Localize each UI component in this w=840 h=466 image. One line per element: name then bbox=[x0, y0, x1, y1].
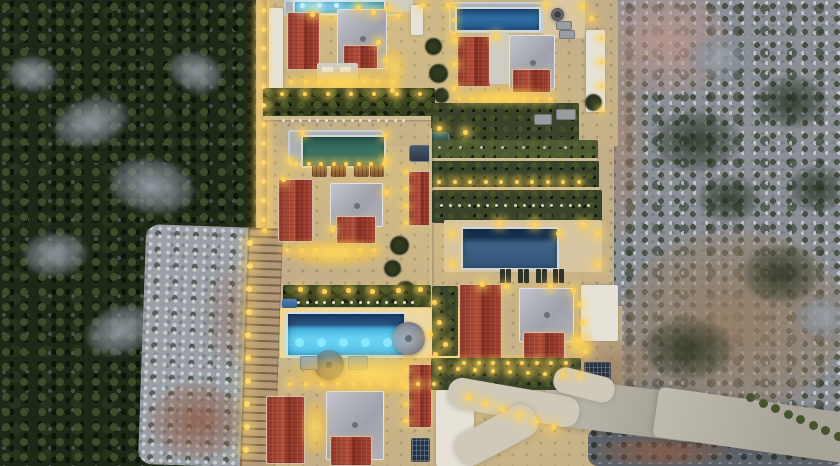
v4-garden-lights bbox=[577, 180, 581, 184]
v1-terrace-lights bbox=[304, 80, 308, 84]
v5-terrace-lights bbox=[368, 382, 372, 386]
v2-round-table bbox=[551, 8, 564, 21]
v5-pool-glow-jets bbox=[295, 338, 304, 347]
v5-hedge-dashes bbox=[359, 301, 362, 304]
boundary-lights bbox=[261, 65, 266, 70]
v5-hedge bbox=[283, 285, 431, 309]
light-point bbox=[396, 288, 401, 293]
boundary-lights bbox=[261, 84, 266, 89]
v5-pool-glow-jets bbox=[361, 338, 370, 347]
light-point bbox=[433, 352, 438, 357]
court-bush bbox=[434, 88, 449, 103]
v3-pool-lights bbox=[332, 162, 336, 166]
v1-hedge-lights bbox=[395, 92, 399, 96]
v1-terrace-lights bbox=[318, 80, 322, 84]
light-point bbox=[384, 190, 389, 195]
v1-terrace-lights bbox=[333, 80, 337, 84]
stairs-lights bbox=[246, 309, 252, 315]
v4-lounger bbox=[542, 269, 547, 283]
carport-lights bbox=[404, 204, 408, 208]
v3-pool-lights bbox=[382, 162, 386, 166]
v5-pool bbox=[286, 312, 406, 357]
light-point bbox=[548, 284, 553, 289]
boundary-lights bbox=[261, 141, 266, 146]
v4-pool-corner-lights bbox=[450, 231, 455, 236]
court-bush bbox=[425, 38, 442, 55]
v6-terrace-lights bbox=[564, 361, 568, 365]
v1-terrace-lights bbox=[376, 80, 380, 84]
v2-terrace-lights bbox=[457, 97, 461, 101]
v4-stone-row bbox=[543, 146, 546, 149]
v5-terrace-lights bbox=[416, 382, 420, 386]
v2-lounger bbox=[534, 114, 552, 125]
boundary-lights bbox=[261, 179, 266, 184]
light-point bbox=[577, 302, 582, 307]
light-point bbox=[452, 86, 457, 91]
light-point bbox=[571, 288, 576, 293]
carport-lights bbox=[404, 385, 408, 389]
light-point bbox=[356, 5, 361, 10]
v2-deckedge-lights bbox=[452, 5, 456, 9]
v3-terrace-lights bbox=[314, 248, 318, 252]
v4-dash-row bbox=[532, 204, 535, 207]
v4-pool-corner-lights bbox=[595, 231, 600, 236]
light-point bbox=[428, 332, 433, 337]
v4-lounger bbox=[553, 269, 558, 283]
light-point bbox=[390, 88, 395, 93]
v1-pool-sparkle bbox=[317, 3, 322, 8]
light-point bbox=[452, 38, 457, 43]
v3-pergola bbox=[370, 165, 384, 177]
stairs-lights bbox=[247, 263, 253, 269]
light-point bbox=[452, 62, 457, 67]
v6-garden-lights bbox=[491, 369, 495, 373]
v1-hedge-lights bbox=[280, 92, 284, 96]
v6-corner-glow bbox=[563, 328, 595, 360]
v4-stone-row bbox=[459, 146, 462, 149]
v2-terrace-lights bbox=[483, 97, 487, 101]
v1-terrace-lights bbox=[289, 80, 293, 84]
v4-dash-row bbox=[477, 204, 480, 207]
aerial-photo bbox=[0, 0, 840, 466]
v3-pergola bbox=[331, 165, 346, 177]
v6-terrace-lights bbox=[491, 361, 495, 365]
court-wall bbox=[411, 5, 423, 35]
v2-terrace-lights bbox=[548, 97, 552, 101]
road-bushes bbox=[821, 426, 830, 435]
v3-pool-lights bbox=[357, 162, 361, 166]
v1-wall-line bbox=[263, 116, 435, 120]
v5-terrace-lights bbox=[352, 382, 356, 386]
light-point bbox=[580, 320, 585, 325]
light-point bbox=[583, 349, 588, 354]
v4-garden-lights bbox=[499, 180, 503, 184]
v4-stone-row bbox=[501, 146, 504, 149]
light-point bbox=[298, 287, 303, 292]
v4-lounger bbox=[506, 269, 511, 283]
light-point bbox=[418, 287, 423, 292]
v4-lounger bbox=[524, 269, 529, 283]
v4-stone-row bbox=[564, 146, 567, 149]
v6-garden-lights bbox=[473, 368, 477, 372]
v5-pool-glow-jets bbox=[339, 338, 348, 347]
light-point bbox=[383, 58, 388, 63]
boundary-lights bbox=[261, 198, 266, 203]
road-bushes bbox=[796, 415, 805, 424]
light-point bbox=[376, 40, 381, 45]
boundary-lights bbox=[261, 217, 266, 222]
light-point bbox=[281, 177, 286, 182]
v6-garden-lights bbox=[456, 367, 460, 371]
v4-lounger bbox=[500, 269, 505, 283]
path-lights bbox=[517, 413, 522, 418]
v2-rightwall-lights bbox=[599, 84, 603, 88]
road-bushes bbox=[771, 404, 780, 413]
v5-terrace-lights bbox=[288, 382, 292, 386]
boundary-lights bbox=[261, 27, 266, 32]
v3-bush bbox=[384, 260, 401, 277]
light-point bbox=[493, 34, 498, 39]
v1-dash-row bbox=[282, 119, 285, 122]
light-point bbox=[443, 342, 448, 347]
v4-dash-row bbox=[560, 204, 563, 207]
v1-hedge-lights bbox=[418, 92, 422, 96]
v1-pool-sparkle bbox=[334, 3, 339, 8]
v1-hedge-lights bbox=[372, 92, 376, 96]
light-point bbox=[497, 221, 502, 226]
path-lights bbox=[534, 419, 539, 424]
light-point bbox=[262, 228, 267, 233]
carport-lights bbox=[404, 170, 408, 174]
v6-terrace-lights bbox=[506, 361, 510, 365]
light-point bbox=[437, 320, 442, 325]
v3-pool-lights bbox=[319, 162, 323, 166]
rock-patch bbox=[688, 36, 750, 78]
v5-hedge-dashes bbox=[385, 301, 388, 304]
v6-terrace-lights bbox=[462, 361, 466, 365]
v2-terrace-lights bbox=[496, 97, 500, 101]
v4-lounger bbox=[518, 269, 523, 283]
v1-terrace-lights bbox=[391, 80, 395, 84]
v5-roof-red-low bbox=[330, 436, 372, 466]
road-bushes bbox=[784, 410, 793, 419]
boundary-lights bbox=[261, 46, 266, 51]
v5-hedge-dashes bbox=[315, 301, 318, 304]
path-lights bbox=[483, 401, 488, 406]
v1-hedge-lights bbox=[349, 92, 353, 96]
solar-panel bbox=[411, 438, 430, 462]
v5-pool-glow-jets bbox=[317, 338, 326, 347]
light-point bbox=[300, 131, 305, 136]
light-point bbox=[556, 231, 561, 236]
light-point bbox=[581, 222, 586, 227]
v2-deckedge-lights bbox=[452, 18, 456, 22]
path-lights bbox=[500, 407, 505, 412]
light-point bbox=[383, 158, 388, 163]
carport-lights bbox=[404, 187, 408, 191]
v2-rightwall-lights bbox=[599, 36, 603, 40]
v3-terrace-lights bbox=[343, 248, 347, 252]
v4-garden-lights bbox=[468, 180, 472, 184]
v1-dash-row bbox=[351, 119, 354, 122]
v2-lounger bbox=[556, 21, 572, 30]
v5-hedge-dashes bbox=[297, 301, 300, 304]
dirt-red-patch bbox=[148, 382, 246, 460]
v1-terrace-lights bbox=[362, 80, 366, 84]
v1-roof-red-main bbox=[287, 12, 320, 70]
v2-rightwall-lights bbox=[599, 108, 603, 112]
v4-dash-row bbox=[440, 204, 443, 207]
v3-pool-lights bbox=[344, 162, 348, 166]
path-lights bbox=[466, 395, 471, 400]
v3-pool-lights bbox=[294, 162, 298, 166]
v5-terrace-lights bbox=[336, 382, 340, 386]
path-lights bbox=[551, 425, 556, 430]
light-point bbox=[446, 3, 451, 8]
v1-dash-row bbox=[291, 119, 294, 122]
boundary-lights bbox=[261, 122, 266, 127]
stairs-lights bbox=[244, 424, 250, 430]
v2-terrace-lights bbox=[535, 97, 539, 101]
v6-garden-lights bbox=[578, 374, 582, 378]
boundary-lights bbox=[261, 103, 266, 108]
v3-pergola bbox=[354, 165, 369, 177]
v2-terrace-lights bbox=[509, 97, 513, 101]
v2-lounger bbox=[556, 109, 576, 120]
carport-lights bbox=[404, 368, 408, 372]
light-point bbox=[346, 288, 351, 293]
v4-pool-corner-lights bbox=[450, 262, 455, 267]
light-point bbox=[463, 130, 468, 135]
v5-hedge-dashes bbox=[394, 301, 397, 304]
stairs-lights bbox=[247, 240, 253, 246]
bush-patch bbox=[742, 245, 820, 303]
v1-dash-row bbox=[308, 119, 311, 122]
v4-dash-row bbox=[514, 204, 517, 207]
light-point bbox=[386, 6, 391, 11]
v4-garden-lights bbox=[515, 180, 519, 184]
v3-terrace-glow bbox=[280, 238, 388, 268]
v5-terrace-lights bbox=[304, 382, 308, 386]
v5-pool-glow-jets bbox=[383, 338, 392, 347]
v3-pool-lights bbox=[369, 162, 373, 166]
v4-dash-row bbox=[523, 204, 526, 207]
v6-roof-red-main bbox=[459, 284, 502, 363]
v1-dash-row bbox=[368, 119, 371, 122]
v6-terrace-lights bbox=[549, 361, 553, 365]
bush-patch bbox=[788, 166, 840, 212]
light-point bbox=[504, 284, 509, 289]
v6-garden-lights bbox=[543, 372, 547, 376]
v6-garden-lights bbox=[438, 366, 442, 370]
road-bushes bbox=[834, 432, 840, 441]
light-point bbox=[420, 3, 425, 8]
court-bush bbox=[429, 64, 448, 83]
v2-pool bbox=[455, 7, 541, 32]
v4-dash-row bbox=[578, 204, 581, 207]
v4-garden-lights bbox=[484, 180, 488, 184]
v3-bush bbox=[390, 236, 409, 255]
light-point bbox=[396, 13, 401, 18]
v4-dash-row bbox=[468, 204, 471, 207]
light-point bbox=[322, 289, 327, 294]
v1-pool-sparkle bbox=[300, 3, 305, 8]
v3-pool-lights bbox=[307, 162, 311, 166]
light-point bbox=[580, 4, 585, 9]
v4-stone-row bbox=[522, 146, 525, 149]
v4-garden-lights bbox=[453, 180, 457, 184]
v5-umbrella bbox=[392, 322, 425, 355]
v2-mid-terrace bbox=[489, 32, 509, 84]
v5-terrace-lights bbox=[384, 382, 388, 386]
boundary-lights bbox=[261, 8, 266, 13]
v3-roof-red-main bbox=[278, 179, 313, 242]
carport-red bbox=[408, 364, 432, 428]
v6-garden-lights bbox=[561, 373, 565, 377]
v6-terrace-lights bbox=[477, 361, 481, 365]
v1-dash-row bbox=[377, 119, 380, 122]
v5-hedge-dashes bbox=[306, 301, 309, 304]
light-point bbox=[287, 158, 292, 163]
v1-hedge-lights bbox=[326, 92, 330, 96]
v4-pool-corner-lights bbox=[595, 262, 600, 267]
v2-terrace-lights bbox=[522, 97, 526, 101]
light-point bbox=[437, 126, 442, 131]
v6-garden-lights bbox=[526, 371, 530, 375]
v3-pergola bbox=[312, 165, 327, 177]
v5-roof-red-main bbox=[266, 396, 305, 464]
v4-dash-row bbox=[486, 204, 489, 207]
v5-hedge-dashes bbox=[403, 301, 406, 304]
light-point bbox=[383, 133, 388, 138]
v1-dash-row bbox=[394, 119, 397, 122]
v5-hedge-dashes bbox=[350, 301, 353, 304]
v4-stone-row bbox=[480, 146, 483, 149]
stairs-lights bbox=[245, 378, 251, 384]
stairs-lights bbox=[245, 355, 251, 361]
v1-terrace-lights bbox=[347, 80, 351, 84]
road-bushes bbox=[759, 399, 768, 408]
light-point bbox=[310, 12, 315, 17]
v1-dash-row bbox=[325, 119, 328, 122]
carport-lights bbox=[404, 402, 408, 406]
parked-car bbox=[282, 299, 297, 308]
v4-garden-lights bbox=[561, 180, 565, 184]
bush-patch bbox=[756, 76, 828, 128]
light-point bbox=[330, 227, 335, 232]
v2-deckedge-lights bbox=[452, 31, 456, 35]
road-bushes bbox=[809, 421, 818, 430]
v4-lounger bbox=[559, 269, 564, 283]
v2-terrace-lights bbox=[470, 97, 474, 101]
light-point bbox=[532, 222, 537, 227]
v4-garden-lights bbox=[546, 180, 550, 184]
light-point bbox=[370, 289, 375, 294]
v3-terrace-lights bbox=[285, 248, 289, 252]
v4-pool bbox=[461, 227, 559, 270]
v3-terrace-lights bbox=[372, 248, 376, 252]
bush-patch bbox=[642, 318, 734, 380]
v6-terrace-lights bbox=[535, 361, 539, 365]
v3-terrace-lights bbox=[358, 248, 362, 252]
v3-terrace-lights bbox=[329, 248, 333, 252]
light-point bbox=[480, 282, 485, 287]
court-shed bbox=[388, 0, 413, 12]
v4-garden-lights bbox=[530, 180, 534, 184]
v5-terrace-lights bbox=[432, 382, 436, 386]
v4-stone-row bbox=[438, 146, 441, 149]
v1-side-wall bbox=[269, 8, 283, 94]
v4-grass-strip bbox=[431, 161, 599, 189]
v6-garden-lights bbox=[508, 370, 512, 374]
light-point bbox=[432, 300, 437, 305]
v3-terrace-lights bbox=[300, 248, 304, 252]
v2-rightwall-lights bbox=[599, 60, 603, 64]
light-point bbox=[589, 16, 594, 21]
v1-dash-row bbox=[334, 119, 337, 122]
v4-dash-row bbox=[569, 204, 572, 207]
v4-garden-lights bbox=[437, 180, 441, 184]
carport-lights bbox=[404, 221, 408, 225]
v1-hedge-lights bbox=[303, 92, 307, 96]
v2-roof-red-main bbox=[457, 36, 491, 87]
light-point bbox=[371, 10, 376, 15]
v4-lounger bbox=[536, 269, 541, 283]
light-point bbox=[575, 338, 580, 343]
light-point bbox=[543, 2, 548, 7]
bush-patch bbox=[652, 110, 740, 172]
v5-terrace-lights bbox=[320, 382, 324, 386]
v2-lounger bbox=[559, 30, 575, 39]
bush-patch bbox=[698, 176, 760, 222]
v6-terrace-lights bbox=[520, 361, 524, 365]
carport-lights bbox=[404, 419, 408, 423]
road-bushes bbox=[746, 393, 755, 402]
boundary-lights bbox=[261, 160, 266, 165]
v5-court-glow bbox=[301, 398, 329, 458]
v4-grass-strip bbox=[430, 140, 598, 160]
v5-hedge-dashes bbox=[341, 301, 344, 304]
